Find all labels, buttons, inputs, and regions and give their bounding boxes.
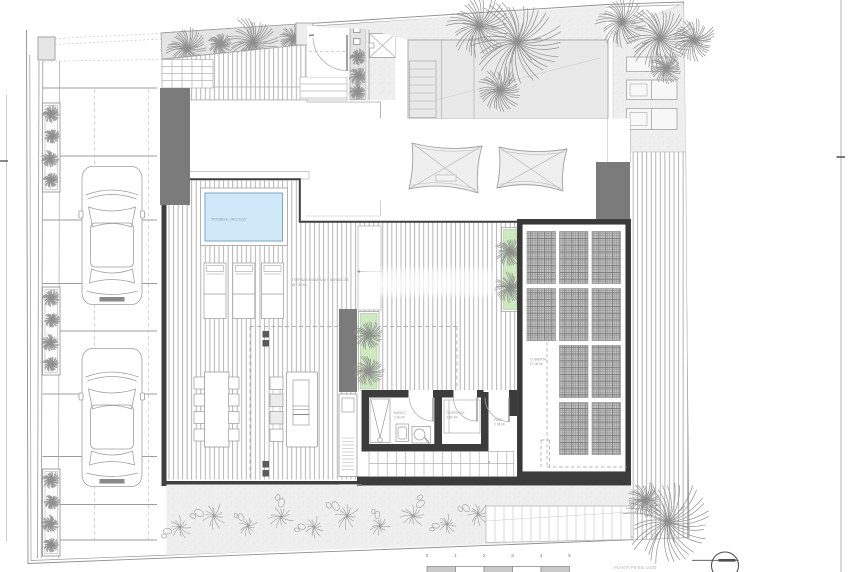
svg-text:27.06 M²: 27.06 M² (530, 362, 544, 366)
svg-text:3: 3 (511, 553, 514, 558)
svg-text:TERRAZA SOLARIUM Y BARBACOA: TERRAZA SOLARIUM Y BARBACOA (292, 278, 350, 282)
svg-text:DESPENSA: DESPENSA (447, 411, 466, 415)
svg-text:2: 2 (483, 553, 486, 558)
svg-text:2.98 M²: 2.98 M² (494, 423, 506, 427)
svg-text:5: 5 (568, 553, 571, 558)
svg-text:1: 1 (454, 553, 457, 558)
svg-text:PASO: PASO (494, 418, 503, 422)
svg-text:CUBIERTA: CUBIERTA (530, 358, 547, 362)
svg-text:POSIBLE JACUZZI: POSIBLE JACUZZI (212, 217, 247, 222)
svg-text:167.59 M²: 167.59 M² (292, 283, 308, 287)
svg-text:BAÑO 2: BAÑO 2 (394, 410, 406, 415)
svg-text:PLANTA PB Esc 1/100: PLANTA PB Esc 1/100 (614, 565, 657, 570)
svg-text:4: 4 (540, 553, 543, 558)
svg-text:habitaclia: habitaclia (378, 274, 457, 293)
svg-text:2.80 M²: 2.80 M² (447, 416, 459, 420)
svg-text:0: 0 (426, 553, 429, 558)
svg-text:2.80 M²: 2.80 M² (394, 416, 406, 420)
